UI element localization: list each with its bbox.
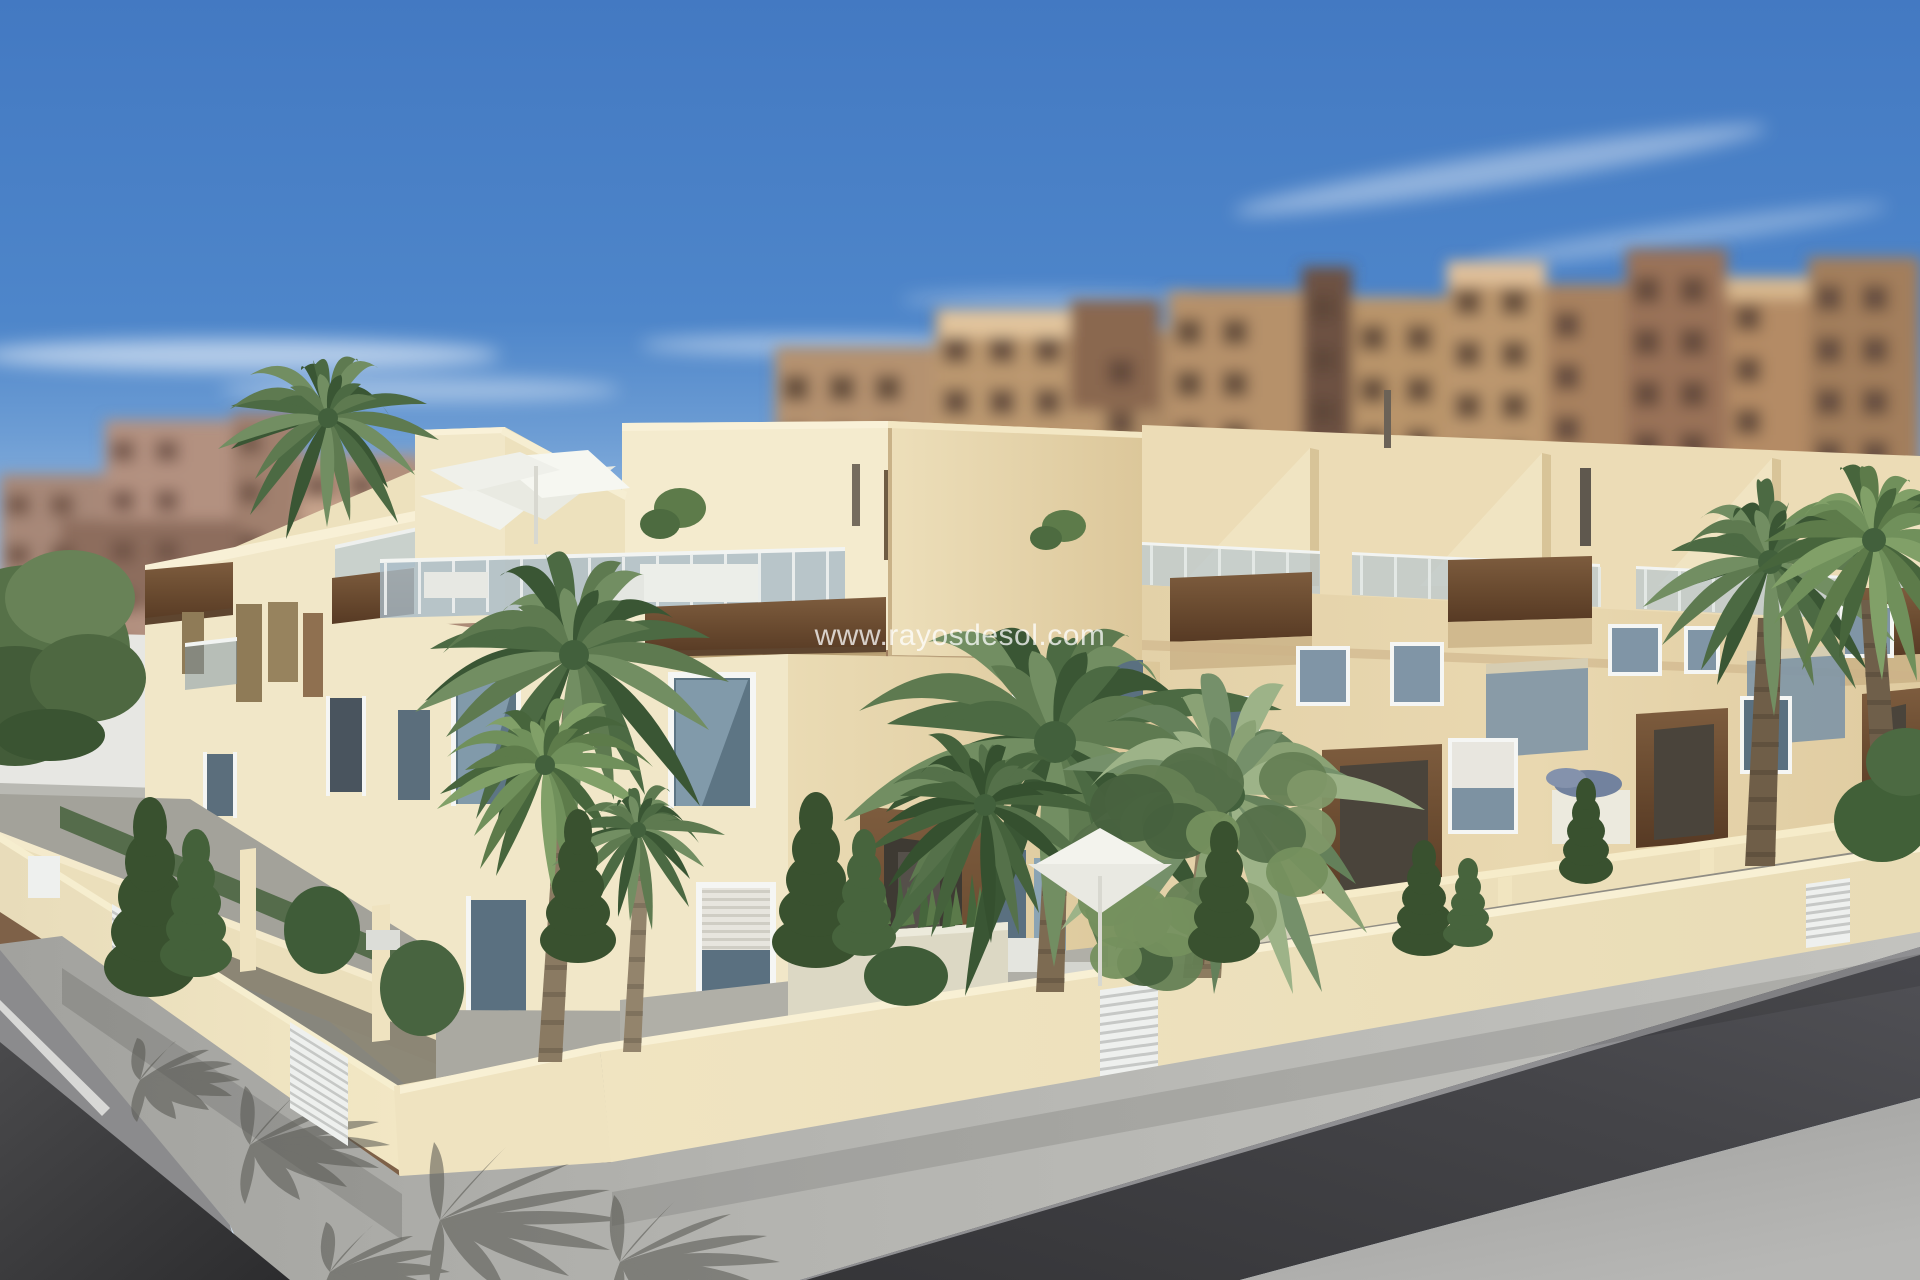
svg-text:www.rayosdesol.com: www.rayosdesol.com bbox=[814, 619, 1106, 652]
